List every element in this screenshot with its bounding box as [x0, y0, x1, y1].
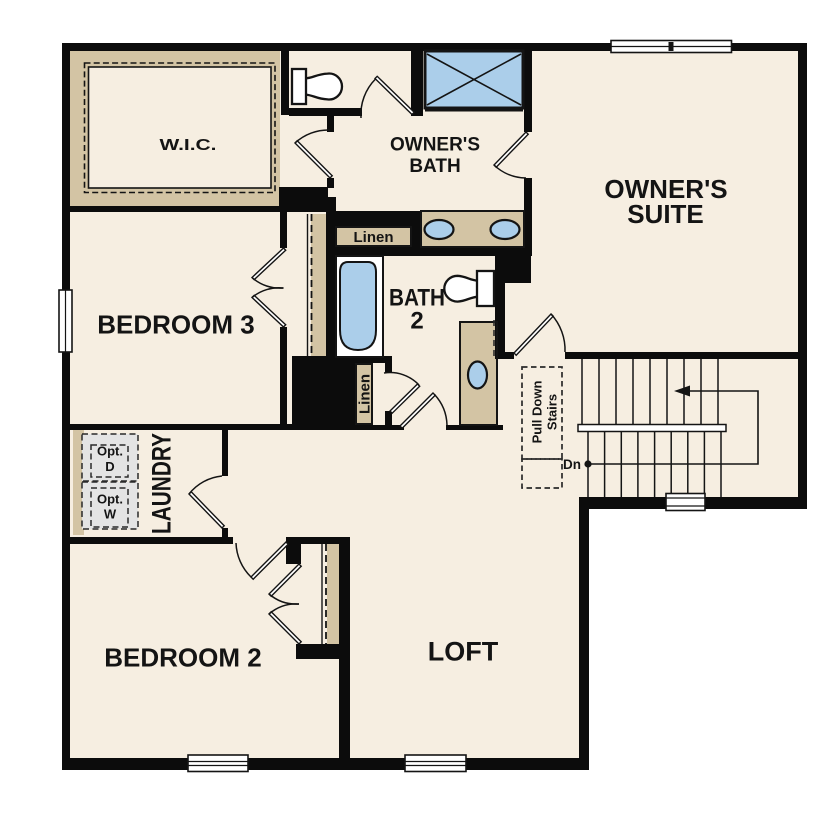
svg-text:LOFT: LOFT — [428, 637, 499, 667]
svg-text:2: 2 — [410, 308, 423, 335]
svg-text:OWNER'S: OWNER'S — [390, 134, 480, 155]
svg-text:Dn: Dn — [563, 457, 581, 472]
svg-text:D: D — [105, 459, 114, 474]
svg-text:BEDROOM 2: BEDROOM 2 — [104, 642, 261, 672]
svg-text:Stairs: Stairs — [545, 394, 560, 430]
svg-text:SUITE: SUITE — [627, 199, 704, 229]
svg-text:W.I.C.: W.I.C. — [160, 137, 217, 154]
svg-text:Linen: Linen — [356, 374, 373, 414]
svg-text:W: W — [104, 507, 117, 522]
svg-text:Opt.: Opt. — [97, 492, 123, 507]
svg-text:Linen: Linen — [354, 229, 394, 246]
svg-text:LAUNDRY: LAUNDRY — [147, 433, 177, 534]
svg-text:BEDROOM 3: BEDROOM 3 — [97, 309, 254, 339]
svg-text:Pull Down: Pull Down — [530, 381, 545, 444]
svg-text:Opt.: Opt. — [97, 444, 123, 459]
svg-text:BATH: BATH — [409, 156, 460, 177]
